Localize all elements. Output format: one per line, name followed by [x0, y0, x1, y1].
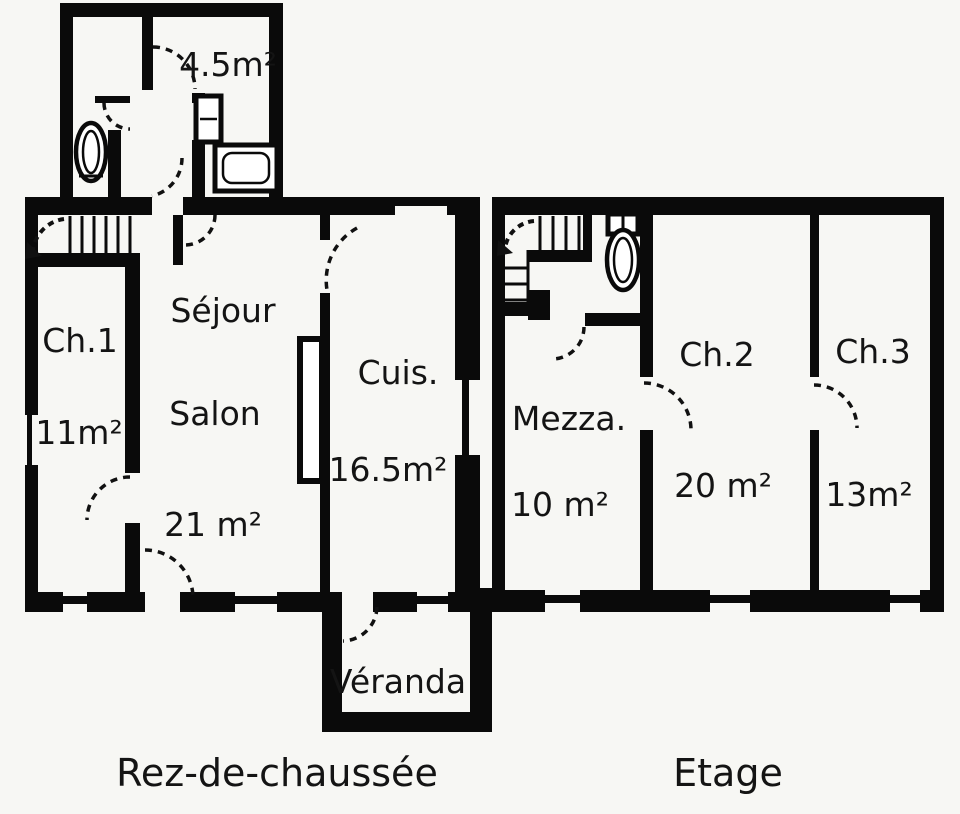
toilet-icon-upper [607, 214, 639, 290]
wall [25, 253, 140, 267]
window [395, 197, 447, 206]
annex-area-label: 4.5m² [179, 45, 277, 84]
toilet-icon [76, 123, 106, 181]
wall [173, 215, 183, 265]
door-arc [185, 215, 215, 245]
upper-floor-caption: Etage [673, 751, 783, 795]
wall [25, 197, 38, 415]
wall [60, 3, 283, 17]
kitchen-area: 16.5m² [329, 450, 448, 489]
wall [108, 130, 121, 197]
wall [125, 523, 140, 592]
ch1-label: Ch.1 [42, 321, 117, 360]
wall [455, 197, 480, 380]
window [462, 380, 469, 455]
window [27, 415, 32, 465]
ch1-area: 11m² [35, 413, 122, 452]
veranda-label: Véranda [330, 662, 466, 701]
upper-floor-plan: Mezza. 10 m² Ch.2 20 m² Ch.3 13m² Etage [492, 197, 944, 795]
ch2-area: 20 m² [674, 466, 772, 505]
ch3-area: 13m² [825, 475, 912, 514]
wall [492, 590, 545, 612]
window [545, 595, 580, 603]
wall [810, 215, 819, 377]
wall [640, 430, 653, 612]
door-arc [644, 383, 691, 430]
wall [528, 290, 550, 320]
wall [192, 140, 205, 197]
sejour-label: Séjour [170, 291, 276, 330]
kitchen-label: Cuis. [358, 353, 439, 392]
door-arc [104, 103, 130, 129]
wall [373, 592, 417, 612]
sink-icon [196, 96, 221, 142]
window [63, 596, 87, 604]
ground-floor-plan: 4.5m² [25, 3, 492, 795]
wall [25, 465, 38, 612]
wall [455, 455, 480, 592]
window [890, 595, 920, 603]
bathtub-inner [223, 153, 269, 183]
wall [87, 592, 145, 612]
ground-floor-caption: Rez-de-chaussée [116, 751, 438, 795]
bathtub-icon [215, 145, 277, 191]
salon-area: 21 m² [164, 505, 262, 544]
door-arc [326, 228, 357, 290]
wall [320, 215, 330, 240]
wall [930, 197, 944, 612]
ch3-label: Ch.3 [835, 332, 910, 371]
wall [322, 712, 492, 732]
mezzanine-area: 10 m² [511, 485, 609, 524]
staircase [25, 216, 130, 259]
salon-label: Salon [169, 394, 260, 433]
door-arc [87, 477, 130, 520]
window [417, 596, 448, 604]
wall [470, 588, 492, 732]
wall [180, 592, 235, 612]
wall [528, 250, 592, 262]
window [710, 595, 750, 603]
door-arc [145, 550, 193, 597]
wall [920, 590, 944, 612]
wall [583, 215, 592, 262]
wall [492, 197, 505, 612]
wall [95, 96, 130, 103]
toilet-bowl-inner [83, 131, 99, 173]
wall [640, 215, 653, 377]
door-arc [152, 158, 182, 196]
wall [750, 590, 890, 612]
stair-direction-arrow [505, 221, 534, 248]
wall [183, 197, 395, 215]
wall [25, 197, 152, 215]
chimney [300, 339, 322, 481]
toilet-bowl-inner [614, 238, 632, 282]
wall [810, 430, 819, 612]
door-arc [814, 385, 857, 428]
door-arc [343, 607, 377, 641]
wall [492, 197, 944, 215]
wall [277, 592, 322, 612]
wall [142, 17, 153, 90]
wall [60, 3, 73, 197]
mezzanine-label: Mezza. [512, 399, 626, 438]
door-arc [552, 327, 584, 359]
floor-plan: 4.5m² [0, 0, 960, 814]
wall [25, 592, 63, 612]
floor-plan-drawing: 4.5m² [0, 0, 960, 814]
window [235, 596, 277, 604]
ch2-label: Ch.2 [679, 335, 754, 374]
wall [492, 302, 530, 316]
wall [125, 267, 140, 473]
